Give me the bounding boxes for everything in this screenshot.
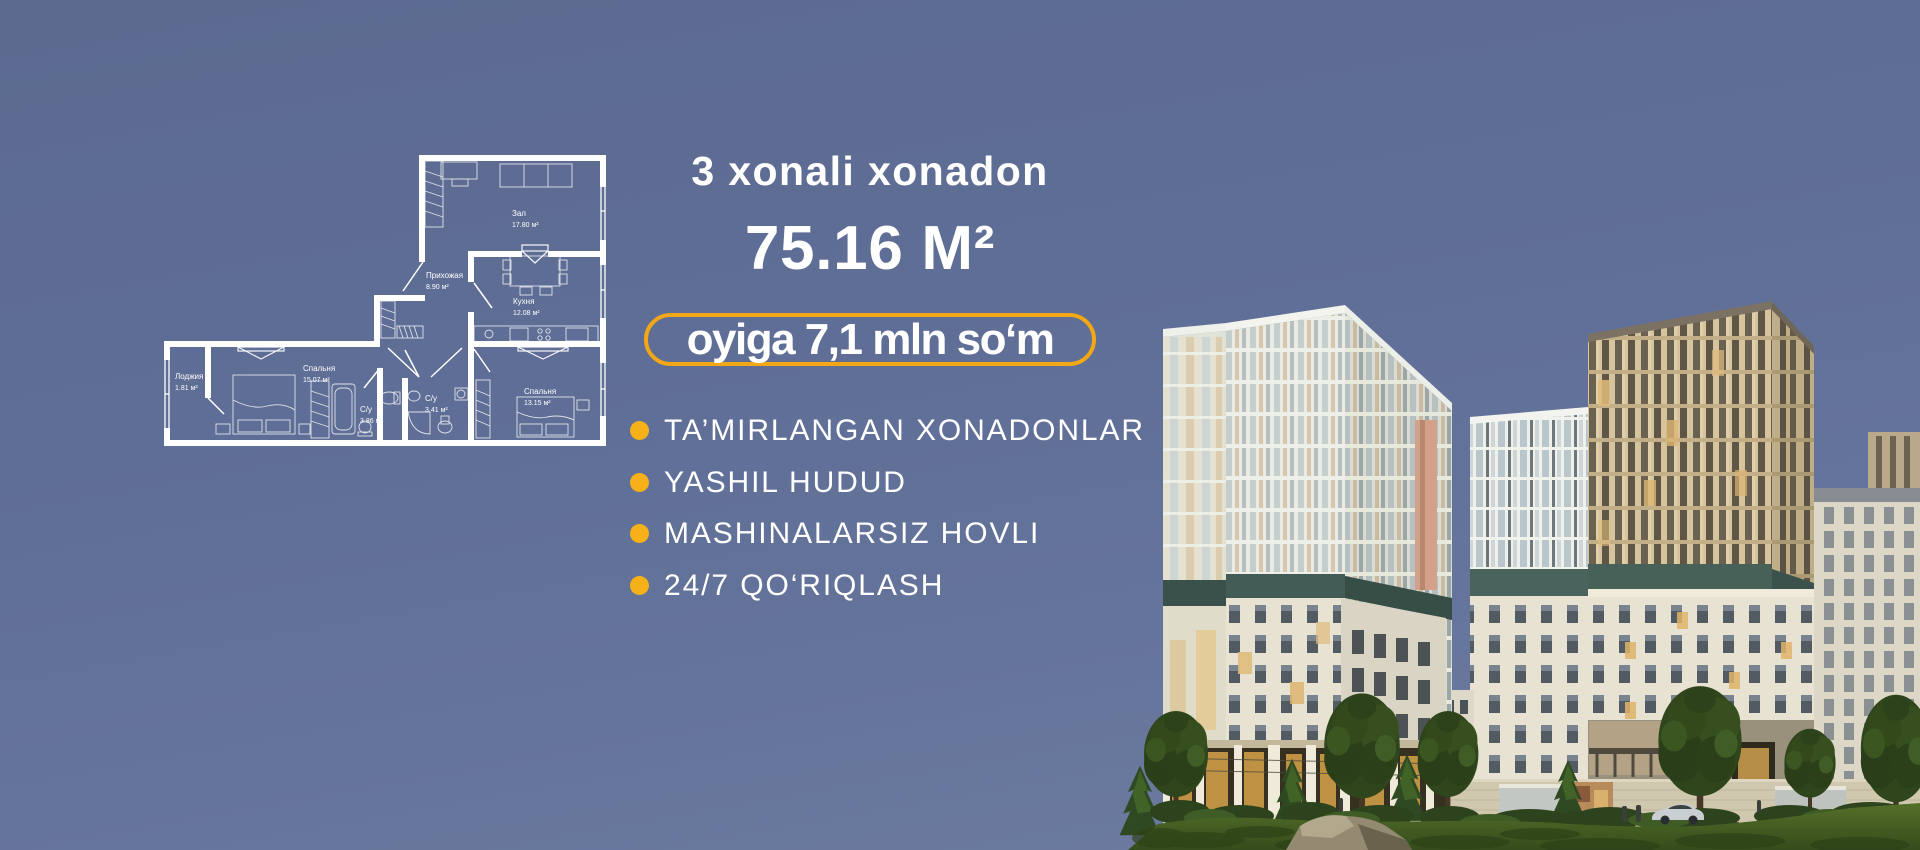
svg-text:Спальня: Спальня bbox=[303, 364, 335, 373]
svg-text:С/у: С/у bbox=[360, 405, 372, 414]
svg-text:Спальня: Спальня bbox=[524, 387, 556, 396]
svg-text:3.86 м²: 3.86 м² bbox=[360, 418, 383, 425]
svg-text:12.08 м²: 12.08 м² bbox=[513, 310, 540, 317]
svg-text:8.90 м²: 8.90 м² bbox=[426, 284, 449, 291]
svg-text:13.15 м²: 13.15 м² bbox=[524, 400, 551, 407]
svg-text:С/у: С/у bbox=[425, 394, 437, 403]
svg-text:15.07 м²: 15.07 м² bbox=[303, 377, 330, 384]
svg-text:1.81 м²: 1.81 м² bbox=[175, 385, 198, 392]
svg-text:Кухня: Кухня bbox=[513, 297, 534, 306]
svg-text:Прихожая: Прихожая bbox=[426, 271, 463, 280]
svg-text:3.41 м²: 3.41 м² bbox=[425, 407, 448, 414]
svg-text:Лоджия: Лоджия bbox=[175, 372, 203, 381]
